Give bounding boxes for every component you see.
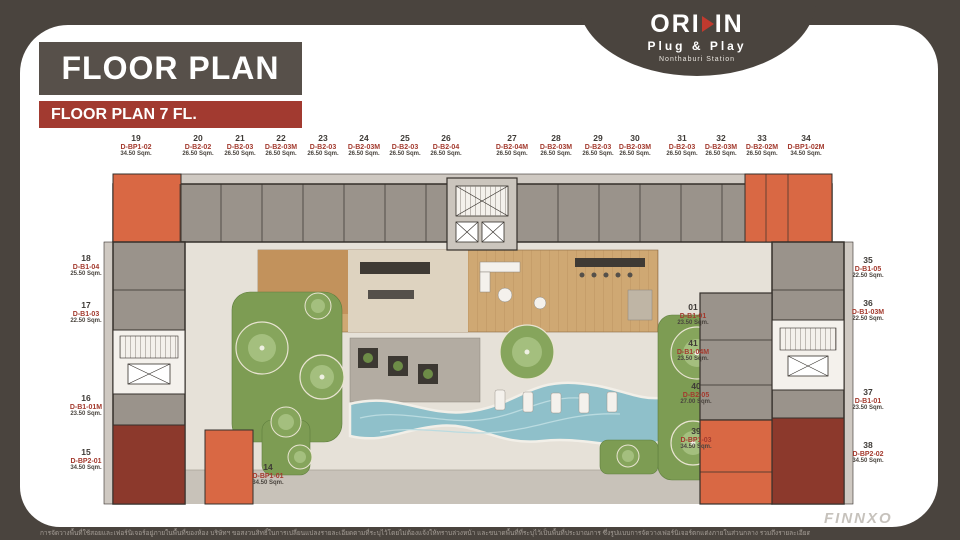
page-title: FLOOR PLAN (39, 42, 302, 95)
unit-callout-38: 38D-BP2-0234.50 Sqm. (840, 441, 896, 465)
unit-callout-16: 16D-B1-01M23.50 Sqm. (58, 394, 114, 418)
unit-callout-40: 40D-B2-0527.00 Sqm. (668, 382, 724, 406)
unit-number: 37 (840, 388, 896, 398)
brand-tagline: Plug & Play (578, 39, 816, 53)
unit-type: D-B1-01M (58, 404, 114, 412)
unit-callout-14: 14D-BP1-0134.50 Sqm. (240, 463, 296, 487)
unit-number: 17 (58, 301, 114, 311)
brand-name-left: ORI (650, 10, 700, 38)
unit-area: 22.50 Sqm. (840, 273, 896, 280)
unit-number: 16 (58, 394, 114, 404)
unit-area: 34.50 Sqm. (58, 465, 114, 472)
page-subtitle: FLOOR PLAN 7 FL. (39, 101, 302, 128)
unit-area: 23.50 Sqm. (840, 405, 896, 412)
unit-type: D-B1-04M (665, 349, 721, 357)
unit-area: 34.50 Sqm. (778, 151, 834, 158)
footer-disclaimer: การจัดวางพื้นที่ใช้สอยและเฟอร์นิเจอร์อยู… (40, 528, 810, 538)
play-triangle-icon (702, 16, 714, 32)
unit-type: D-BP2-02 (840, 451, 896, 459)
unit-type: D-BP1-02 (108, 144, 164, 152)
unit-area: 23.50 Sqm. (58, 411, 114, 418)
unit-number: 38 (840, 441, 896, 451)
unit-callout-34: 34D-BP1-02M34.50 Sqm. (778, 134, 834, 158)
unit-type: D-BP1-01 (240, 473, 296, 481)
unit-area: 26.50 Sqm. (418, 151, 474, 158)
unit-number: 36 (840, 299, 896, 309)
unit-type: D-B1-03M (840, 309, 896, 317)
brand-name: ORIIN (578, 12, 816, 37)
unit-callout-41: 41D-B1-04M23.50 Sqm. (665, 339, 721, 363)
unit-area: 34.50 Sqm. (108, 151, 164, 158)
unit-number: 35 (840, 256, 896, 266)
unit-type: D-B1-05 (840, 266, 896, 274)
unit-number: 19 (108, 134, 164, 144)
unit-number: 40 (668, 382, 724, 392)
unit-type: D-BP2-01 (58, 458, 114, 466)
unit-area: 22.50 Sqm. (840, 316, 896, 323)
unit-area: 23.50 Sqm. (665, 356, 721, 363)
unit-type: D-BP1-02M (778, 144, 834, 152)
unit-number: 39 (668, 427, 724, 437)
unit-type: D-B2-04 (418, 144, 474, 152)
unit-callout-17: 17D-B1-0322.50 Sqm. (58, 301, 114, 325)
unit-callout-37: 37D-B1-0123.50 Sqm. (840, 388, 896, 412)
unit-callout-36: 36D-B1-03M22.50 Sqm. (840, 299, 896, 323)
floor-plan-poster: ORIIN Plug & Play Nonthaburi Station FLO… (0, 0, 960, 540)
unit-callout-19: 19D-BP1-0234.50 Sqm. (108, 134, 164, 158)
unit-type: D-BP1-03 (668, 437, 724, 445)
unit-number: 34 (778, 134, 834, 144)
unit-area: 27.00 Sqm. (668, 399, 724, 406)
unit-callout-15: 15D-BP2-0134.50 Sqm. (58, 448, 114, 472)
unit-type: D-B1-01 (840, 398, 896, 406)
unit-callout-39: 39D-BP1-0334.50 Sqm. (668, 427, 724, 451)
unit-type: D-B1-01 (665, 313, 721, 321)
brand-name-right: IN (715, 10, 744, 38)
unit-callout-01: 01D-B1-0123.50 Sqm. (665, 303, 721, 327)
unit-area: 34.50 Sqm. (840, 458, 896, 465)
unit-number: 26 (418, 134, 474, 144)
unit-area: 34.50 Sqm. (240, 480, 296, 487)
unit-number: 01 (665, 303, 721, 313)
unit-number: 14 (240, 463, 296, 473)
unit-type: D-B1-03 (58, 311, 114, 319)
unit-callout-35: 35D-B1-0522.50 Sqm. (840, 256, 896, 280)
watermark: FINNXO (824, 510, 893, 527)
unit-area: 34.50 Sqm. (668, 444, 724, 451)
unit-type: D-B1-04 (58, 264, 114, 272)
unit-number: 18 (58, 254, 114, 264)
unit-area: 22.50 Sqm. (58, 318, 114, 325)
unit-number: 15 (58, 448, 114, 458)
unit-callout-18: 18D-B1-0425.50 Sqm. (58, 254, 114, 278)
unit-number: 41 (665, 339, 721, 349)
unit-area: 25.50 Sqm. (58, 271, 114, 278)
unit-area: 23.50 Sqm. (665, 320, 721, 327)
unit-type: D-B2-05 (668, 392, 724, 400)
brand-station: Nonthaburi Station (578, 56, 816, 63)
unit-callout-26: 26D-B2-0426.50 Sqm. (418, 134, 474, 158)
